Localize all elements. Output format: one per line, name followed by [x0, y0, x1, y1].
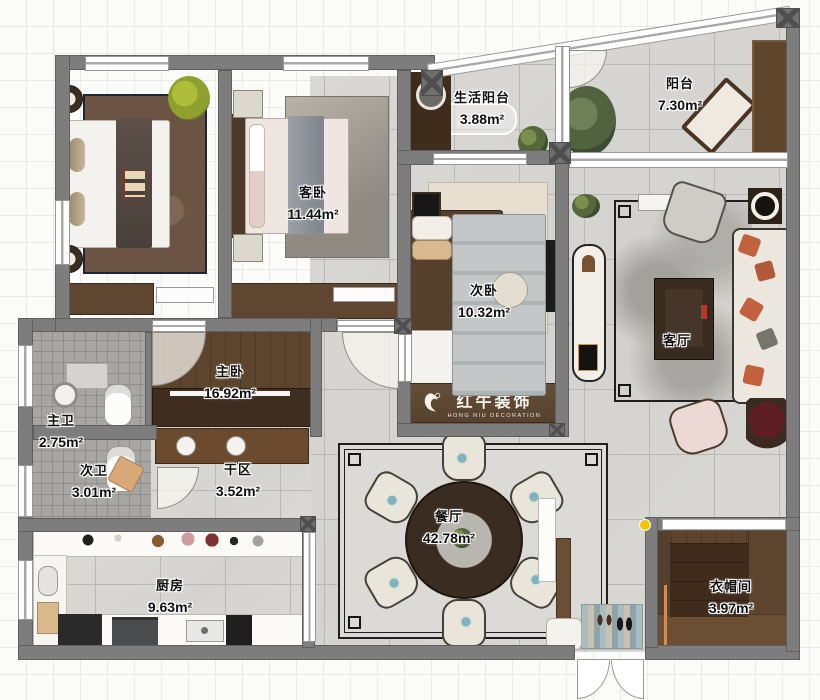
sofa-pillow-5 — [742, 364, 765, 387]
master-bed-bolster-1 — [69, 138, 85, 172]
entry-door-leaf-right — [611, 659, 644, 699]
guest-wardrobe-slide — [333, 287, 395, 302]
room-label-dining-room: 餐厅 42.78m² — [423, 506, 475, 546]
second-bed-pillow-1 — [412, 216, 452, 240]
hall-console — [572, 244, 606, 382]
room-label-guest-bedroom: 客卧 11.44m² — [287, 182, 338, 222]
room-label-dry-area: 干区 3.52m² — [216, 459, 260, 499]
wall-kitchen-north — [18, 518, 310, 532]
wall-master-guest-divider — [218, 70, 232, 318]
cloakroom-slide-front — [662, 519, 786, 530]
wall-guest-east — [397, 70, 411, 332]
window-guest-top — [283, 56, 369, 71]
master-bed-bolster-2 — [69, 192, 85, 226]
fridge — [226, 615, 252, 648]
pillar-secondbed-south — [549, 423, 565, 437]
master-bed-deco-squares — [124, 170, 146, 198]
window-master-left — [55, 200, 70, 265]
living-floor-plant — [746, 398, 788, 454]
master-dresser — [60, 283, 154, 315]
vanity-sink-2 — [226, 436, 246, 456]
window-masterbath-left — [18, 345, 33, 407]
cloakroom-left-rail — [664, 585, 667, 646]
room-label-balcony: 阳台 7.30m² — [658, 73, 702, 113]
window-secondbath-left — [18, 465, 33, 517]
dining-sideboard — [538, 498, 556, 582]
kitchen-left-sink — [38, 566, 58, 596]
brand-name-en: HONG NIU DECORATION — [448, 413, 542, 419]
room-label-cloakroom: 衣帽间 3.97m² — [709, 576, 753, 616]
room-label-living-balcony: 生活阳台 3.88m² — [454, 87, 510, 127]
second-bed-pillow-2 — [412, 240, 452, 260]
vanity-sink-1 — [176, 436, 196, 456]
pillar-divider-bottom — [549, 142, 571, 164]
master-bath-shower — [52, 382, 78, 408]
wall-secondbed-livingroom-divider — [555, 150, 569, 437]
marker-dot — [639, 519, 651, 531]
room-label-master-bath: 主卫 2.75m² — [39, 410, 83, 450]
pillar-top-right — [776, 8, 800, 28]
pillar-guest-balcony — [421, 70, 443, 96]
guest-nightstand-top — [233, 90, 263, 118]
balcony-divider-window — [555, 46, 570, 154]
hall-plant-small — [572, 194, 600, 218]
master-bath-toilet — [104, 384, 132, 426]
master-plant — [168, 76, 210, 120]
master-wardrobe-slide — [156, 287, 214, 303]
speaker — [748, 188, 782, 224]
dining-chair-4 — [442, 599, 486, 647]
door-masterbedroom-threshold — [152, 320, 206, 332]
window-livingbalcony-south — [433, 153, 527, 165]
wall-left-upper — [55, 55, 70, 332]
kitchen-corner-unit — [58, 614, 102, 648]
window-livingroom-north-slider — [569, 152, 788, 168]
window-master-top — [85, 56, 169, 71]
door-guest-bedroom-threshold — [337, 320, 399, 332]
pillar-kitchen — [300, 516, 316, 532]
brand-bull-icon — [421, 392, 441, 414]
wall-cloakroom-west — [645, 517, 658, 648]
cloakroom-bottom-wardrobe — [656, 614, 788, 647]
wall-right — [786, 22, 800, 652]
pillar-hall — [394, 318, 412, 334]
door-kitchen-slider — [303, 532, 316, 642]
floor-plan-canvas: 红牛装饰 HONG NIU DECORATION — [0, 0, 820, 700]
wall-bottom-west — [18, 645, 575, 660]
living-rug-fret-top — [618, 205, 631, 218]
balcony-cabinet — [752, 40, 786, 152]
room-label-living-room: 客厅 — [663, 330, 691, 349]
door-second-bedroom — [398, 334, 412, 382]
living-rug-fret-bottom — [618, 384, 631, 397]
room-label-kitchen: 厨房 9.63m² — [148, 575, 192, 615]
kitchen-sink — [186, 620, 224, 642]
wall-bottom-east — [645, 645, 800, 660]
room-label-master-bedroom: 主卧 16.92m² — [204, 361, 256, 401]
entry-shoes — [592, 608, 632, 642]
guest-nightstand-bottom — [233, 234, 263, 262]
dining-chair-1 — [442, 433, 486, 481]
kitchen-cutting-board — [37, 602, 59, 634]
entry-door-leaf-left — [577, 659, 610, 699]
room-label-second-bath: 次卫 3.01m² — [72, 460, 116, 500]
dishwasher — [112, 617, 158, 647]
room-label-second-bedroom: 次卧 10.32m² — [458, 280, 510, 320]
wall-masterbath-corridor — [145, 332, 152, 428]
guest-bed-pillows — [249, 124, 265, 228]
second-bedroom-tv — [546, 240, 555, 312]
second-bedroom-frame — [412, 192, 441, 218]
wall-hall-corridor — [310, 318, 322, 437]
window-kitchen-left — [18, 560, 33, 620]
wall-secondbed-south — [397, 423, 557, 437]
